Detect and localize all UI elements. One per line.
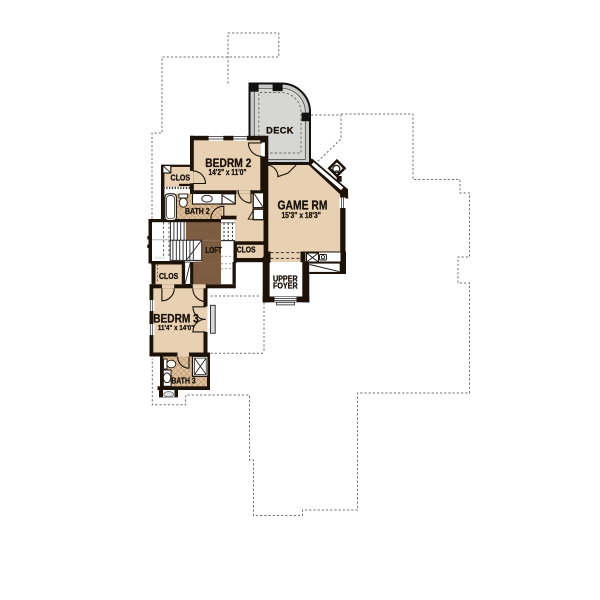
svg-text:15'3" x 18'3": 15'3" x 18'3" xyxy=(281,211,321,220)
svg-text:CLOS: CLOS xyxy=(159,272,178,281)
svg-text:LOFT: LOFT xyxy=(205,245,222,255)
svg-text:DECK: DECK xyxy=(266,126,294,136)
svg-text:CLOS: CLOS xyxy=(171,174,191,183)
svg-text:BATH 2: BATH 2 xyxy=(185,207,210,216)
svg-text:FOYER: FOYER xyxy=(273,281,298,290)
svg-text:11'4" x 14'0": 11'4" x 14'0" xyxy=(158,323,195,332)
svg-text:14'2" x 11'0": 14'2" x 11'0" xyxy=(209,168,247,177)
svg-text:CLOS: CLOS xyxy=(237,246,256,255)
svg-text:BATH 3: BATH 3 xyxy=(171,377,196,386)
